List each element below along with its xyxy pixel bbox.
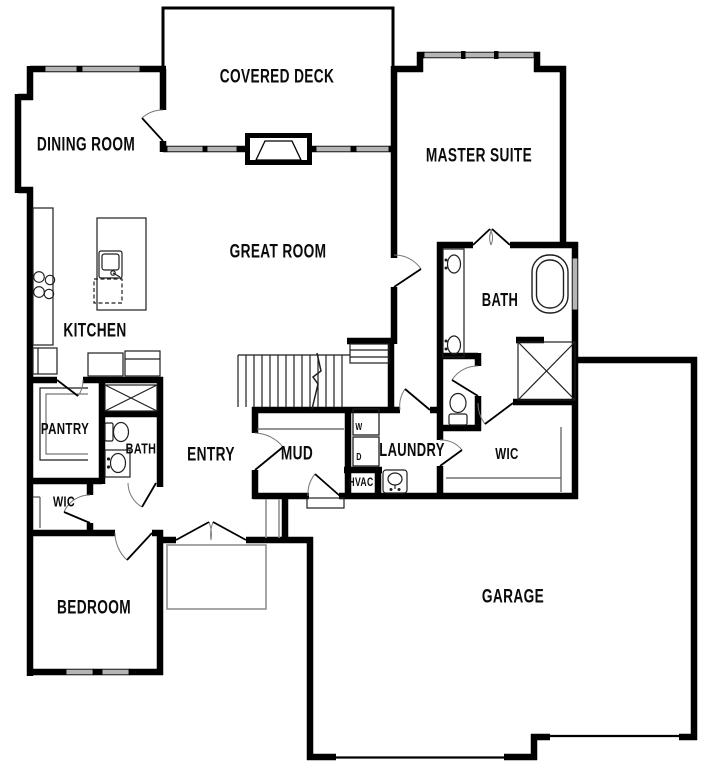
room-label-bath-master: BATH xyxy=(482,291,518,309)
floor-plan: COVERED DECK DINING ROOM MASTER SUITE GR… xyxy=(0,0,715,768)
room-label-hvac: HVAC xyxy=(348,476,373,488)
covered-deck-outline xyxy=(163,8,393,68)
room-label-great-room: GREAT ROOM xyxy=(230,243,327,262)
stairs-icon xyxy=(238,344,389,409)
dishwasher-icon xyxy=(94,279,122,303)
cooktop-icon xyxy=(34,272,55,299)
room-label-wic-master: WIC xyxy=(495,447,518,463)
room-label-covered-deck: COVERED DECK xyxy=(220,68,335,87)
kitchen-fixtures xyxy=(33,208,160,376)
door-arcs xyxy=(64,110,492,560)
master-bath-fixtures xyxy=(443,249,575,425)
freestanding-tub-icon xyxy=(532,255,568,313)
base-cabinet xyxy=(88,353,123,376)
room-label-garage: GARAGE xyxy=(482,588,544,607)
room-label-pantry: PANTRY xyxy=(41,422,89,438)
kitchen-counter xyxy=(33,208,53,345)
room-label-master-suite: MASTER SUITE xyxy=(426,147,532,166)
toilet-icon xyxy=(105,423,129,442)
base-cabinet xyxy=(125,351,160,376)
appliance-label-washer: W xyxy=(355,423,362,433)
vanity-sink-icon xyxy=(445,336,460,354)
fireplace-icon xyxy=(248,136,310,163)
front-porch xyxy=(167,499,279,609)
toilet-icon xyxy=(449,394,467,426)
room-label-bath-main: BATH xyxy=(126,442,157,457)
room-label-entry: ENTRY xyxy=(187,446,235,465)
understair-shelf xyxy=(350,344,389,363)
appliance-label-dryer: D xyxy=(356,453,362,463)
shower-x-icon xyxy=(518,342,575,400)
walls xyxy=(18,52,697,760)
room-label-laundry: LAUNDRY xyxy=(379,441,444,459)
room-label-mud: MUD xyxy=(281,445,313,464)
linen-shower-x xyxy=(105,385,157,411)
room-label-wic-front: WIC xyxy=(53,495,75,510)
refrigerator-icon xyxy=(33,348,57,374)
garage-stoop xyxy=(307,498,344,508)
island-sink-icon xyxy=(99,251,122,278)
floor-plan-drawing xyxy=(0,0,715,768)
laundry-sink-icon xyxy=(383,470,407,493)
room-label-dining-room: DINING ROOM xyxy=(37,136,135,155)
vanity-sink-icon xyxy=(445,255,460,273)
room-label-kitchen: KITCHEN xyxy=(63,322,126,341)
wic-front-shelf xyxy=(33,497,40,528)
room-label-bedroom: BEDROOM xyxy=(57,599,131,618)
